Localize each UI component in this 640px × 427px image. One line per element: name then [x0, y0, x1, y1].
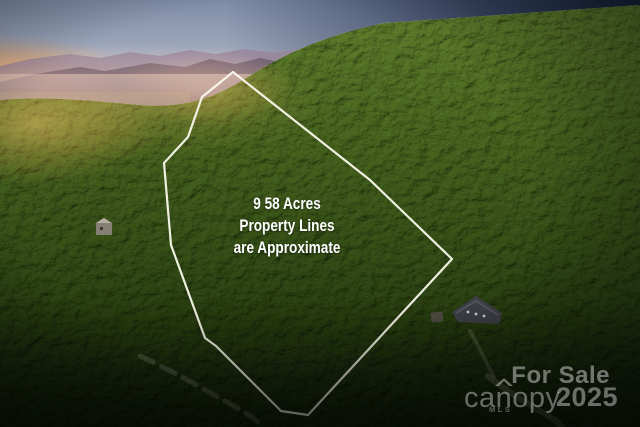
listing-photo: 9 58 Acres Property Lines are Approximat…	[0, 0, 640, 427]
bottom-shade	[0, 300, 640, 427]
aerial-scene	[0, 0, 640, 427]
